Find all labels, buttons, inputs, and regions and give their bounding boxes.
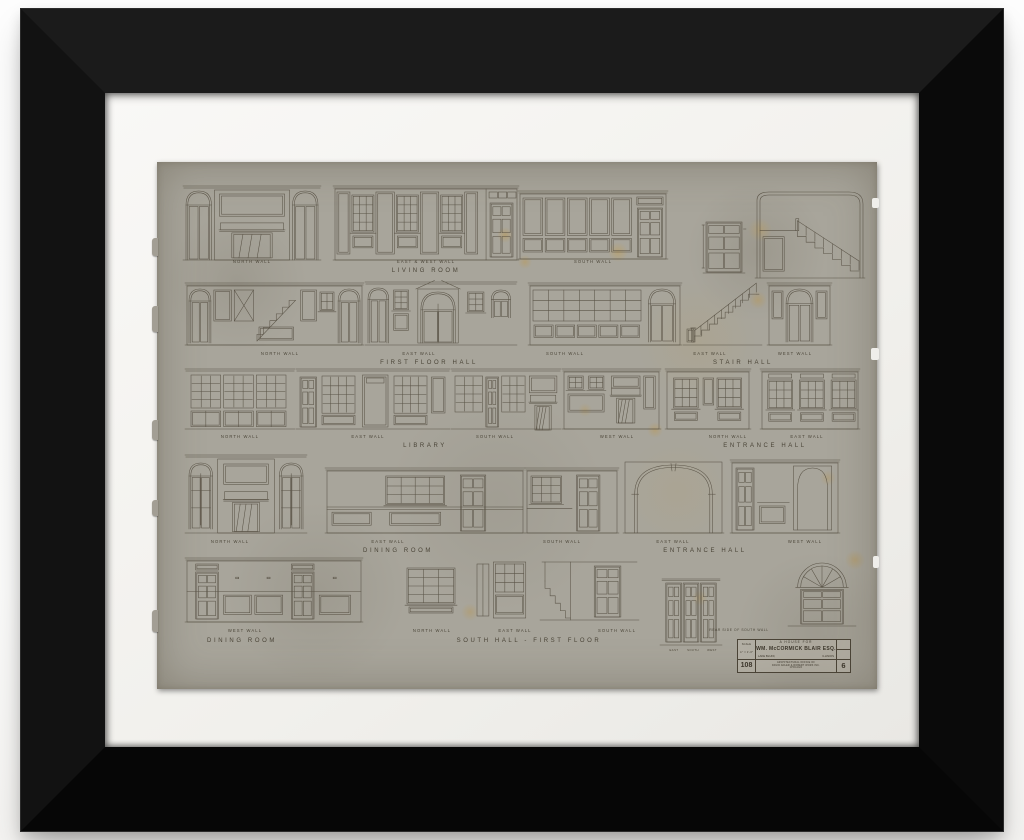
paper-chip [873, 556, 879, 568]
room-label: SOUTH HALL - FIRST FLOOR [457, 638, 602, 644]
scale-label: SCALE [738, 644, 755, 647]
wall-label: NORTH WALL [413, 628, 451, 633]
wall-label: NORTH WALL [233, 259, 271, 264]
door-label: SOUTH [687, 648, 699, 652]
elevation-linework [183, 186, 865, 645]
torn-hinge-tab [152, 306, 158, 332]
wall-label: EAST WALL [351, 434, 384, 439]
project-cell: A HOUSE FOR WM. McCORMICK BLAIR ESQ. LAK… [756, 640, 836, 659]
drawing-labels: NORTH WALLEAST & WEST WALLSOUTH WALLLIVI… [207, 259, 824, 652]
wall-label: EAST WALL [656, 539, 689, 544]
drawing-number: 108 [738, 660, 756, 672]
wall-label: WEST WALL [600, 434, 634, 439]
project-location: LAKE BLUFF, ILLINOIS [756, 655, 836, 658]
wall-label: EAST WALL [693, 351, 726, 356]
revision-cell [837, 649, 850, 659]
room-label: LIVING ROOM [392, 268, 461, 274]
wall-label: EAST WALL [371, 539, 404, 544]
location-city: LAKE BLUFF, [758, 655, 775, 658]
title-block-lower: 108 ARCHITECTURAL OFFICE OF DAVID ADLER … [738, 660, 850, 672]
room-label: LIBRARY [403, 443, 447, 449]
room-label: DINING ROOM [363, 548, 433, 554]
scale-value: ¾″ = 1′-0″ [738, 652, 755, 655]
door-label: EAST [670, 648, 679, 652]
wall-label: NORTH WALL [261, 351, 299, 356]
photo-of-framed-drawing: NORTH WALLEAST & WEST WALLSOUTH WALLLIVI… [0, 0, 1024, 840]
drawing-sheet: NORTH WALLEAST & WEST WALLSOUTH WALLLIVI… [157, 162, 877, 689]
wall-label: SOUTH WALL [574, 259, 612, 264]
wall-label: SOUTH WALL [543, 539, 581, 544]
mat-board: NORTH WALLEAST & WEST WALLSOUTH WALLLIVI… [105, 93, 919, 747]
wall-label: EAST & WEST WALL [397, 259, 455, 264]
wall-label: WEST WALL [778, 351, 812, 356]
architect-office: ARCHITECTURAL OFFICE OF DAVID ADLER & RO… [756, 660, 836, 672]
revision-cells [836, 640, 850, 659]
door-label: WEST [707, 648, 717, 652]
client-name: WM. McCORMICK BLAIR ESQ. [756, 647, 836, 653]
wall-label: NORTH WALL [211, 539, 249, 544]
revision-cell [837, 640, 850, 649]
project-heading: A HOUSE FOR [756, 641, 836, 645]
torn-hinge-tab [152, 238, 158, 256]
torn-hinge-tab [152, 500, 158, 516]
room-label: ENTRANCE HALL [723, 443, 806, 449]
wall-label: SOUTH WALL [546, 351, 584, 356]
torn-hinge-tab [152, 420, 158, 440]
location-state: ILLINOIS [822, 655, 834, 658]
wall-label: EAST WALL [790, 434, 823, 439]
office-line: CHICAGO [756, 667, 836, 670]
sheet-number: 6 [836, 660, 850, 672]
wall-label: EAST WALL [402, 351, 435, 356]
note-above-title-block: REAR SIDE OF SOUTH WALL [709, 628, 768, 632]
wall-label: WEST WALL [228, 628, 262, 633]
paper-chip [872, 198, 879, 208]
elevation-drawings-svg: NORTH WALLEAST & WEST WALLSOUTH WALLLIVI… [157, 162, 877, 689]
wall-label: NORTH WALL [709, 434, 747, 439]
room-label: FIRST FLOOR HALL [380, 360, 478, 366]
wall-label: SOUTH WALL [598, 628, 636, 633]
room-label: ENTRANCE HALL [663, 548, 746, 554]
wall-label: SOUTH WALL [476, 434, 514, 439]
wall-label: NORTH WALL [221, 434, 259, 439]
room-label: STAIR HALL [713, 360, 773, 366]
wall-label: WEST WALL [788, 539, 822, 544]
title-block: SCALE ¾″ = 1′-0″ A HOUSE FOR WM. McCORMI… [737, 639, 851, 673]
paper-chip [871, 348, 879, 360]
torn-hinge-tab [152, 610, 158, 632]
wall-label: EAST WALL [498, 628, 531, 633]
picture-frame: NORTH WALLEAST & WEST WALLSOUTH WALLLIVI… [21, 9, 1003, 831]
title-block-upper: SCALE ¾″ = 1′-0″ A HOUSE FOR WM. McCORMI… [738, 640, 850, 660]
scale-cell: SCALE ¾″ = 1′-0″ [738, 640, 756, 659]
room-label: DINING ROOM [207, 638, 277, 644]
